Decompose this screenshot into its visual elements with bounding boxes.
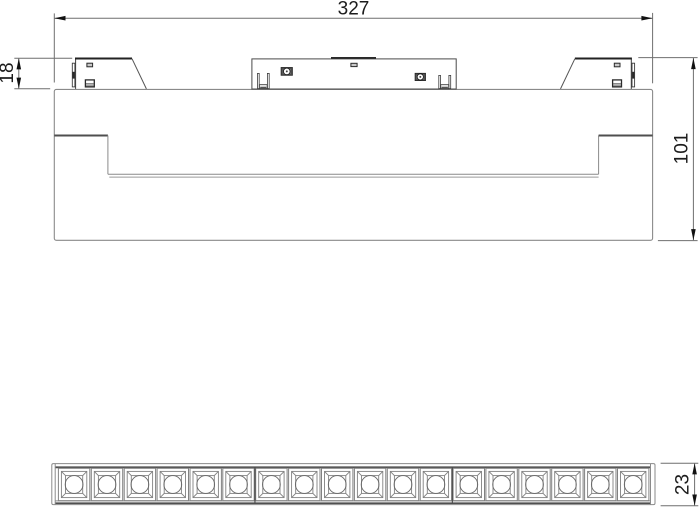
svg-text:327: 327 bbox=[338, 0, 370, 20]
svg-text:101: 101 bbox=[672, 133, 693, 165]
svg-text:23: 23 bbox=[673, 474, 694, 495]
svg-text:18: 18 bbox=[0, 62, 18, 83]
